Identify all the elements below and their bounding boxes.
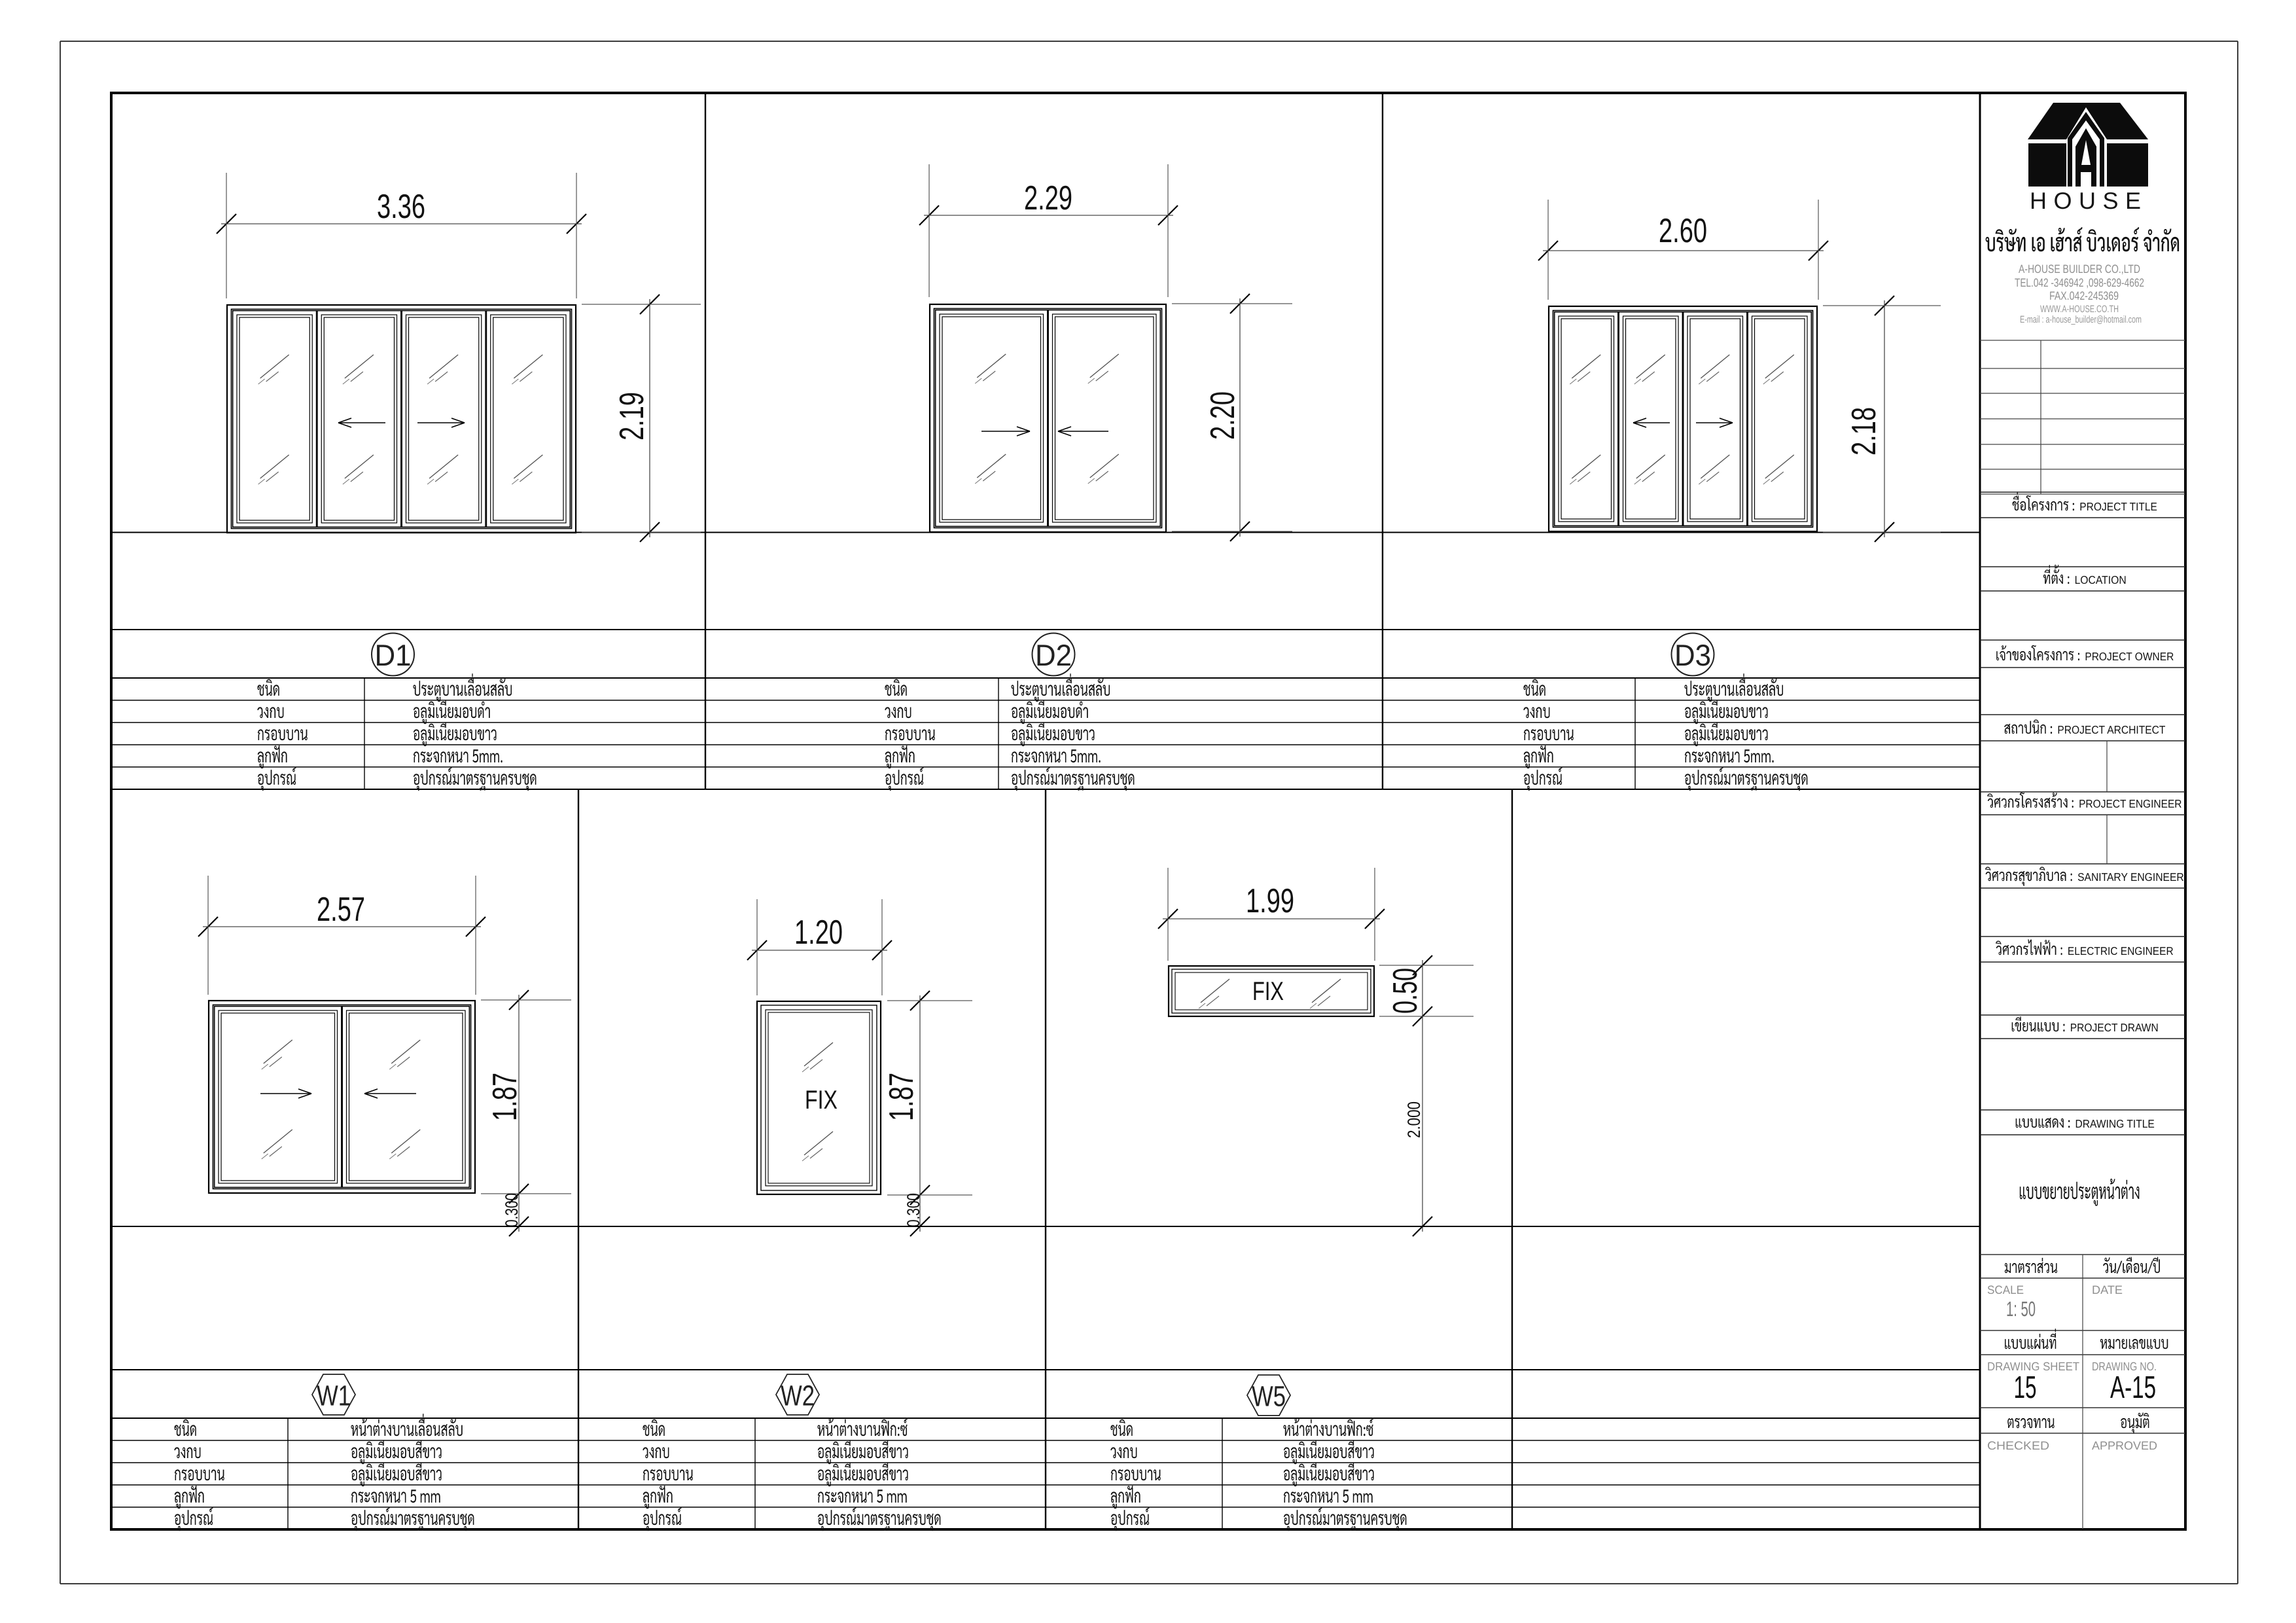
svg-text:LOCATION: LOCATION — [2075, 573, 2127, 586]
svg-text:D3: D3 — [1674, 638, 1711, 672]
svg-text:D2: D2 — [1035, 638, 1072, 672]
svg-text:2.60: 2.60 — [1659, 212, 1707, 250]
svg-text:0.300: 0.300 — [502, 1193, 521, 1227]
svg-text:2.29: 2.29 — [1024, 179, 1072, 217]
svg-text:CHECKED: CHECKED — [1987, 1439, 2049, 1452]
svg-text:W1: W1 — [317, 1380, 351, 1412]
svg-text:WWW.A-HOUSE.CO.TH: WWW.A-HOUSE.CO.TH — [2040, 304, 2119, 315]
svg-text:DATE: DATE — [2092, 1283, 2123, 1296]
svg-text:E-mail : a-house_builder@hotma: E-mail : a-house_builder@hotmail.com — [2020, 314, 2142, 325]
svg-text:FIX: FIX — [1252, 977, 1284, 1006]
svg-text:1.87: 1.87 — [883, 1073, 921, 1121]
svg-text:2.20: 2.20 — [1204, 391, 1242, 440]
svg-text:0.50: 0.50 — [1386, 968, 1424, 1014]
svg-text:PROJECT ARCHITECT: PROJECT ARCHITECT — [2057, 723, 2166, 736]
svg-text:W5: W5 — [1252, 1381, 1286, 1413]
svg-text:PROJECT OWNER: PROJECT OWNER — [2085, 650, 2174, 663]
svg-text:PROJECT DRAWN: PROJECT DRAWN — [2070, 1021, 2159, 1034]
svg-text:PROJECT ENGINEER: PROJECT ENGINEER — [2079, 797, 2181, 810]
svg-text:0.300: 0.300 — [904, 1193, 923, 1227]
svg-text:TEL.042 -346942 ,098-629-4662: TEL.042 -346942 ,098-629-4662 — [2015, 276, 2144, 289]
svg-text:1: 50: 1: 50 — [2006, 1297, 2036, 1321]
svg-text:PROJECT TITLE: PROJECT TITLE — [2079, 500, 2157, 513]
svg-text:1.20: 1.20 — [794, 914, 843, 952]
svg-text:1.99: 1.99 — [1246, 882, 1294, 920]
svg-text:A-HOUSE BUILDER CO.,LTD: A-HOUSE BUILDER CO.,LTD — [2019, 262, 2140, 276]
svg-text:FAX.042-245369: FAX.042-245369 — [2049, 289, 2119, 302]
svg-text:SCALE: SCALE — [1987, 1283, 2024, 1296]
svg-text:2.19: 2.19 — [613, 392, 651, 440]
svg-text:D1: D1 — [375, 638, 412, 672]
svg-text:3.36: 3.36 — [377, 188, 425, 226]
svg-text:15: 15 — [2014, 1370, 2037, 1405]
svg-text:1.87: 1.87 — [486, 1073, 524, 1121]
svg-text:FIX: FIX — [805, 1086, 838, 1115]
svg-text:DRAWING TITLE: DRAWING TITLE — [2075, 1117, 2155, 1130]
svg-text:APPROVED: APPROVED — [2092, 1439, 2157, 1452]
svg-text:2.57: 2.57 — [317, 891, 365, 929]
svg-text:2.000: 2.000 — [1404, 1101, 1424, 1138]
svg-text:ELECTRIC ENGINEER: ELECTRIC ENGINEER — [2068, 944, 2174, 957]
svg-text:SANITARY ENGINEER: SANITARY ENGINEER — [2077, 870, 2184, 883]
svg-text:A-15: A-15 — [2110, 1370, 2156, 1405]
svg-text:2.18: 2.18 — [1845, 407, 1883, 455]
svg-text:W2: W2 — [781, 1380, 815, 1412]
